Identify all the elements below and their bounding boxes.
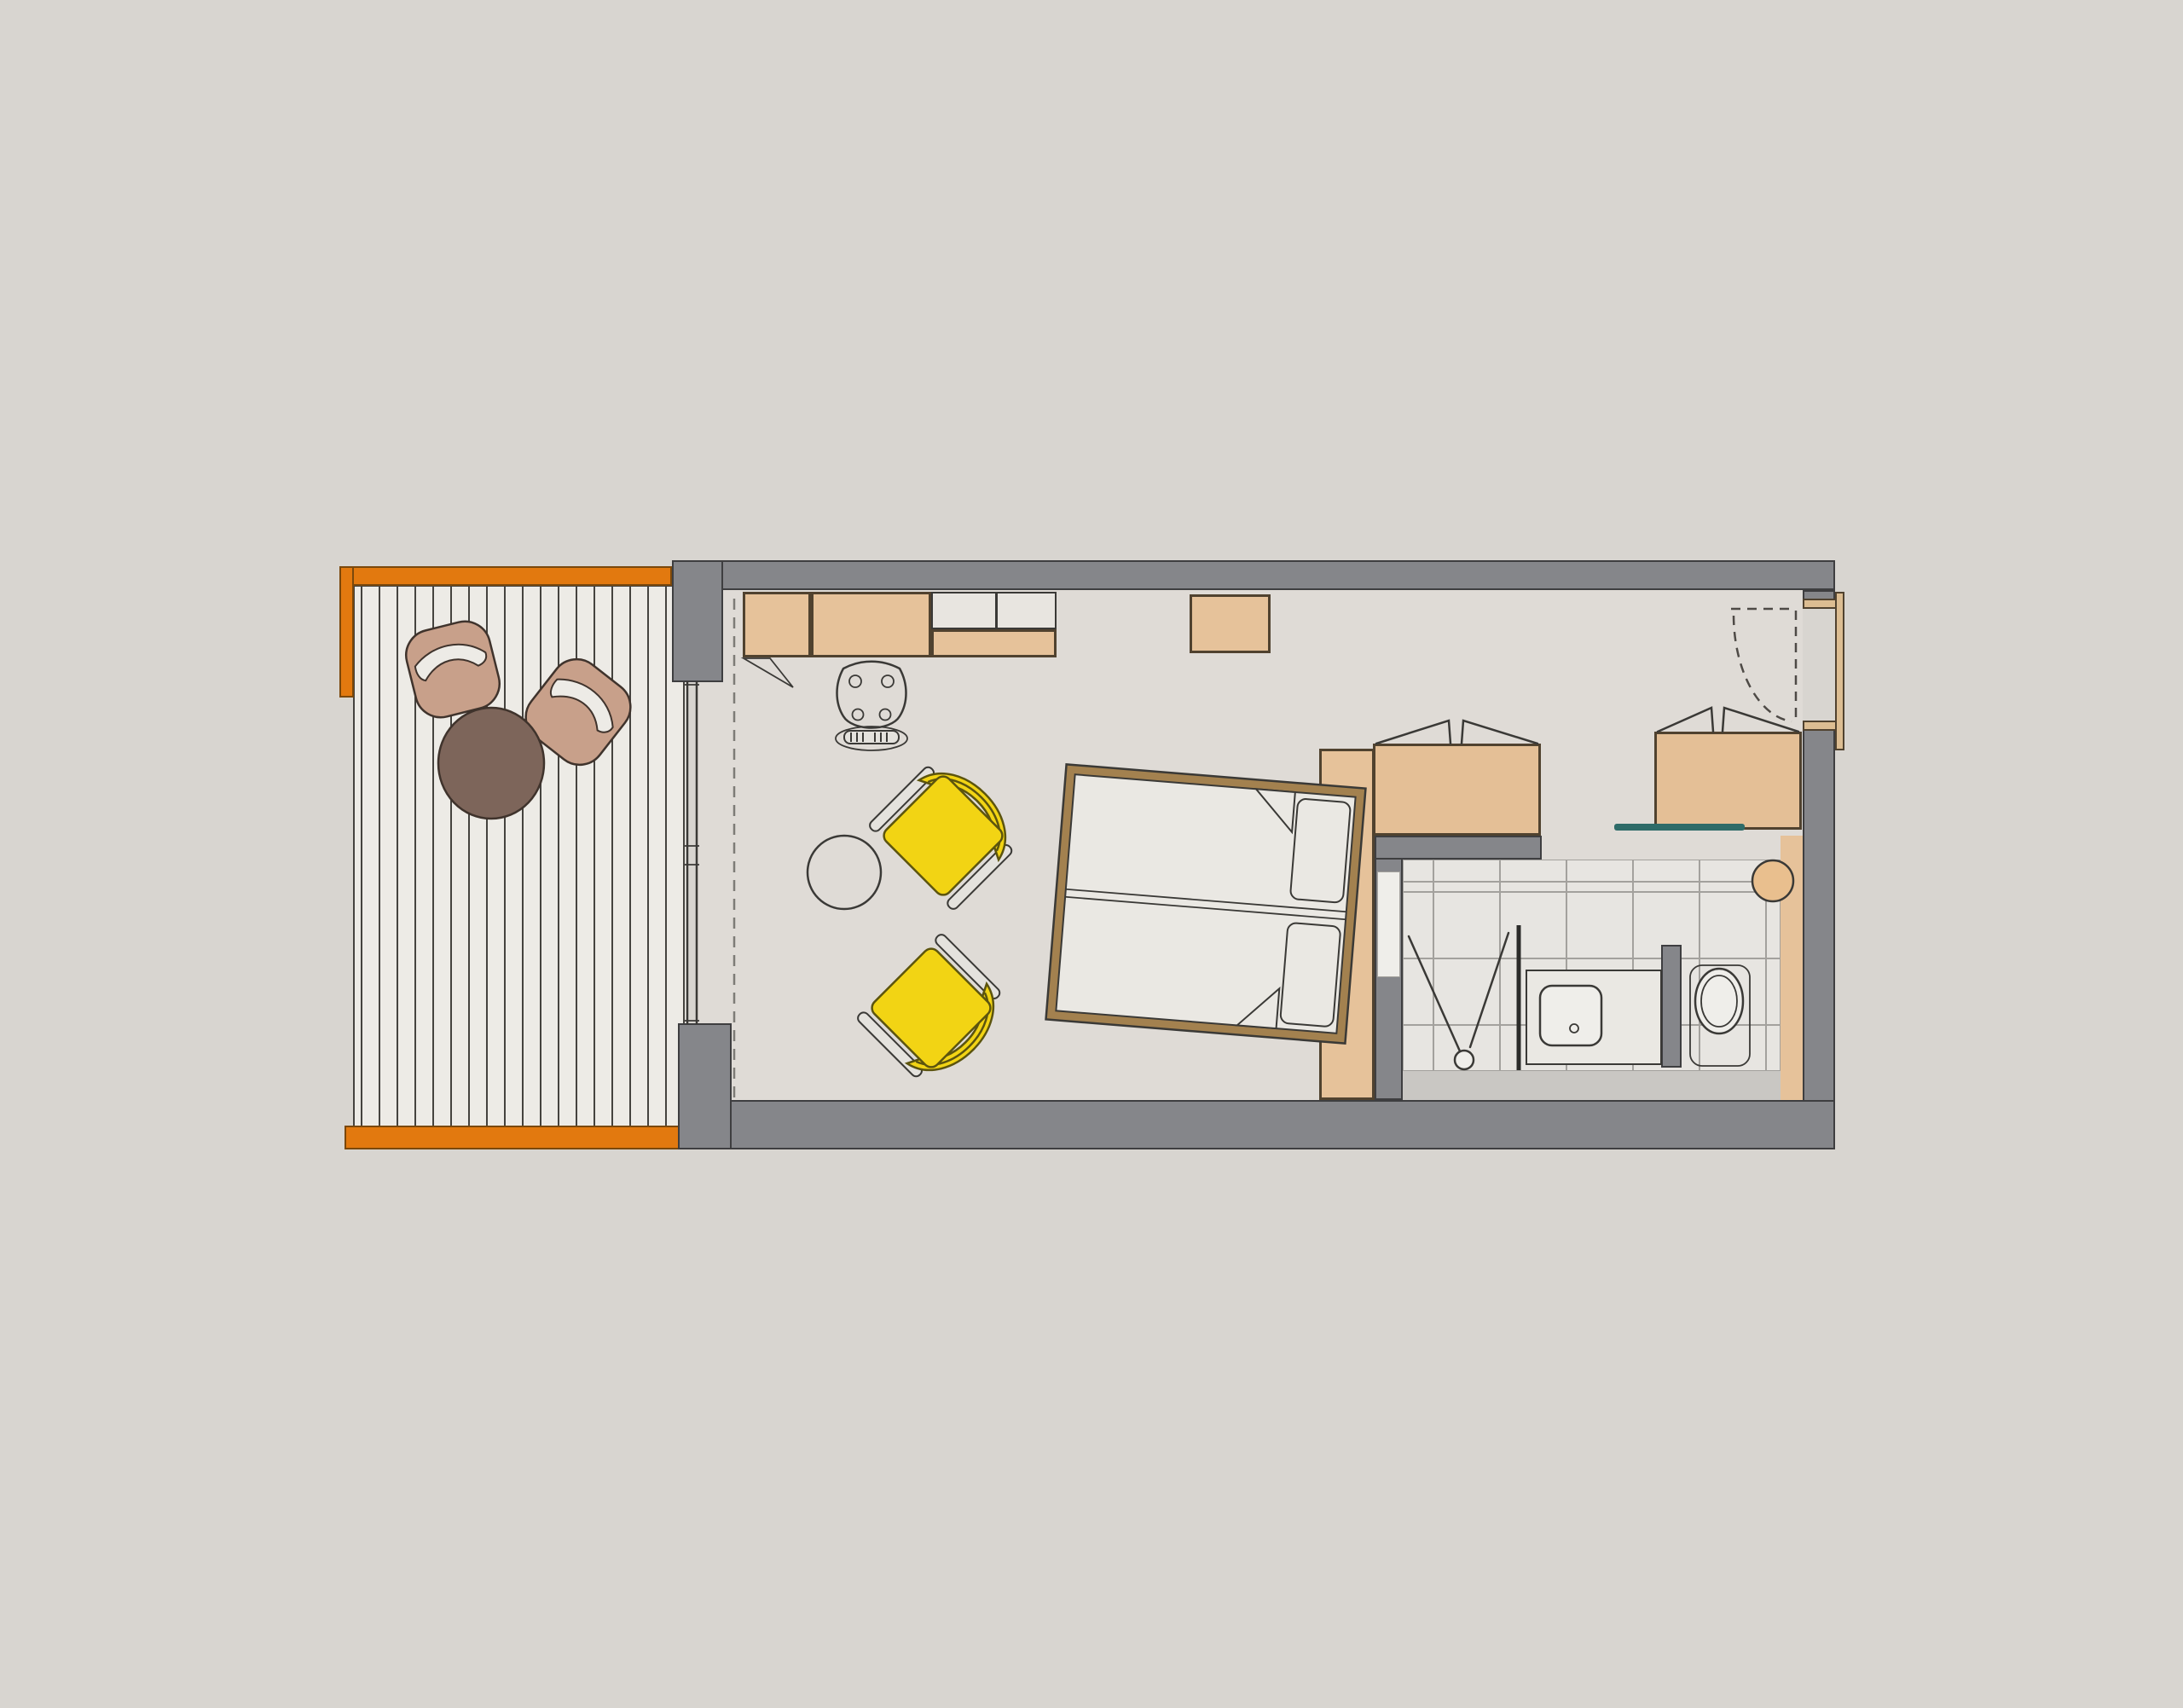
pillow-2 <box>1280 923 1340 1028</box>
bathroom-stool <box>1752 860 1793 901</box>
wardrobe-right-doors <box>1658 708 1798 732</box>
armchair-2 <box>856 933 1016 1093</box>
cabinet-open-door-icon <box>744 658 793 687</box>
shower <box>1409 925 1519 1070</box>
toilet <box>1690 965 1750 1066</box>
wardrobe-left-doors <box>1376 721 1537 744</box>
floor-plan-canvas <box>0 0 2183 1708</box>
side-table <box>808 836 881 909</box>
armchair-1 <box>868 751 1028 912</box>
terrace-round-table <box>438 708 544 819</box>
entry-door-swing <box>1731 609 1796 723</box>
bathroom-sliding-door <box>1614 824 1745 831</box>
vanity-sink <box>1526 970 1661 1064</box>
desk-chair <box>836 662 907 750</box>
terrace-glass-door <box>685 682 699 1023</box>
double-bed <box>1046 764 1366 1043</box>
pillow-1 <box>1290 798 1351 903</box>
plan-linework <box>0 0 2183 1708</box>
